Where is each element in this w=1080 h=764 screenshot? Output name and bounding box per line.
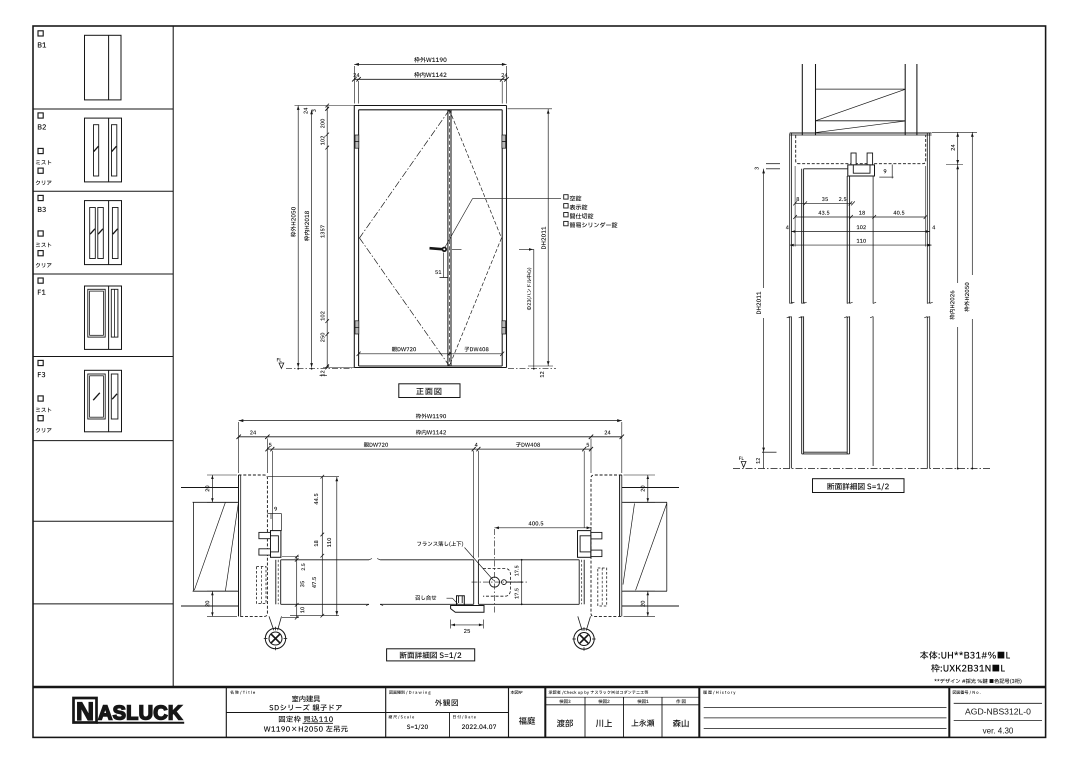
svg-text:AGD-NBS312L-0: AGD-NBS312L-0 xyxy=(965,707,1031,717)
svg-text:ASLUCK: ASLUCK xyxy=(98,703,183,725)
svg-text:N: N xyxy=(76,698,94,726)
svg-text:ver. 4.30: ver. 4.30 xyxy=(983,727,1014,736)
